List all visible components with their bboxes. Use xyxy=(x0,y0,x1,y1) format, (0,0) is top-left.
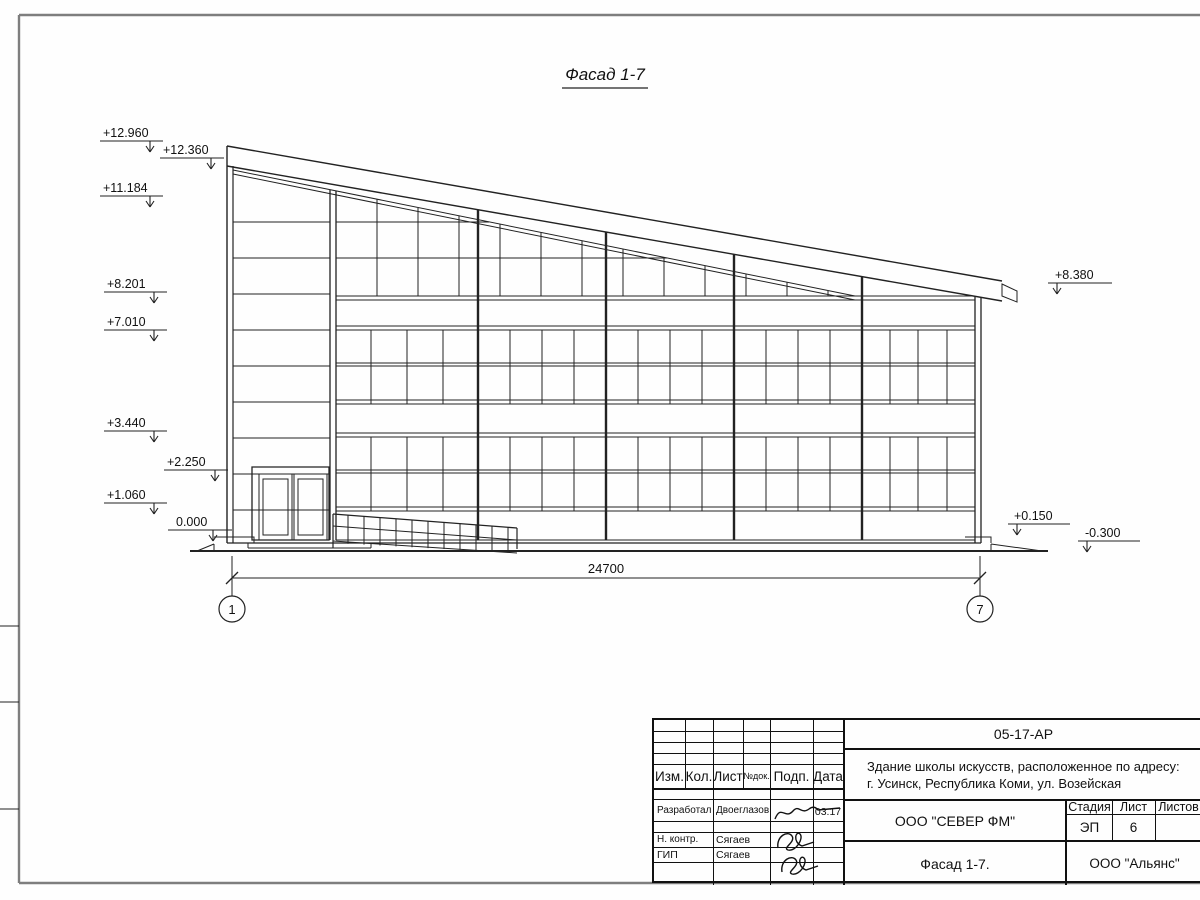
col-header-data: Дата xyxy=(813,764,843,788)
developed-by-name: Двоеглазов xyxy=(716,799,772,821)
col-header-izm: Изм. xyxy=(654,764,685,788)
developed-by-label: Разработал xyxy=(657,799,715,821)
signature-ncontrol-gip xyxy=(772,828,822,880)
elevation-mark-label: -0.300 xyxy=(1085,526,1120,540)
elevation-mark-label: +3.440 xyxy=(107,416,146,430)
col-header-ndok: №док. xyxy=(743,764,770,788)
list-value: 6 xyxy=(1112,814,1155,840)
gip-name: Сягаев xyxy=(716,847,772,862)
drawing-sheet: Фасад 1-7 +12.960 +12.360 +11.184 +8.201… xyxy=(0,0,1200,900)
elevation-mark-label: +12.360 xyxy=(163,143,209,157)
signature-developed xyxy=(772,800,844,824)
list-label: Лист xyxy=(1112,799,1155,814)
title-block: Изм. Кол. Лист №док. Подп. Дата Разработ… xyxy=(652,718,1200,883)
drawing-title: Фасад 1-7 xyxy=(565,65,645,84)
elevation-mark-label: +0.150 xyxy=(1014,509,1053,523)
elevation-mark-label: +12.960 xyxy=(103,126,149,140)
design-company: ООО "СЕВЕР ФМ" xyxy=(845,801,1065,840)
stage-value: ЭП xyxy=(1067,814,1112,840)
elevation-marks-right: +8.380 +0.150 -0.300 xyxy=(1014,268,1120,540)
col-header-list: Лист xyxy=(713,764,743,788)
dimension-label: 24700 xyxy=(588,561,624,576)
client-company: ООО "Альянс" xyxy=(1067,842,1200,885)
ncontrol-name: Сягаев xyxy=(716,832,772,847)
elevation-mark-label: +8.201 xyxy=(107,277,146,291)
axis-bubble-7: 7 xyxy=(967,596,993,622)
elevation-mark-label: 0.000 xyxy=(176,515,207,529)
project-address-line1: Здание школы искусств, расположенное по … xyxy=(867,758,1200,774)
elevation-mark-label: +1.060 xyxy=(107,488,146,502)
sheet-name: Фасад 1-7. xyxy=(845,842,1065,885)
listov-label: Листов xyxy=(1155,799,1200,814)
ncontrol-label: Н. контр. xyxy=(657,832,715,847)
stage-label: Стадия xyxy=(1067,799,1112,814)
elevation-mark-label: +2.250 xyxy=(167,455,206,469)
col-header-podp: Подп. xyxy=(770,764,813,788)
elevation-mark-label: +11.184 xyxy=(103,181,148,195)
axis-label: 1 xyxy=(228,602,235,617)
col-header-kol: Кол. xyxy=(685,764,713,788)
elevation-mark-label: +8.380 xyxy=(1055,268,1094,282)
gip-label: ГИП xyxy=(657,847,715,862)
elevation-marks-left: +12.960 +12.360 +11.184 +8.201 +7.010 +3… xyxy=(103,126,209,529)
elevation-mark-label: +7.010 xyxy=(107,315,146,329)
facade-linework xyxy=(0,141,1140,809)
project-address-line2: г. Усинск, Республика Коми, ул. Возейска… xyxy=(867,775,1200,791)
axis-label: 7 xyxy=(976,602,983,617)
axis-bubble-1: 1 xyxy=(219,596,245,622)
doc-code: 05-17-АР xyxy=(845,720,1200,748)
